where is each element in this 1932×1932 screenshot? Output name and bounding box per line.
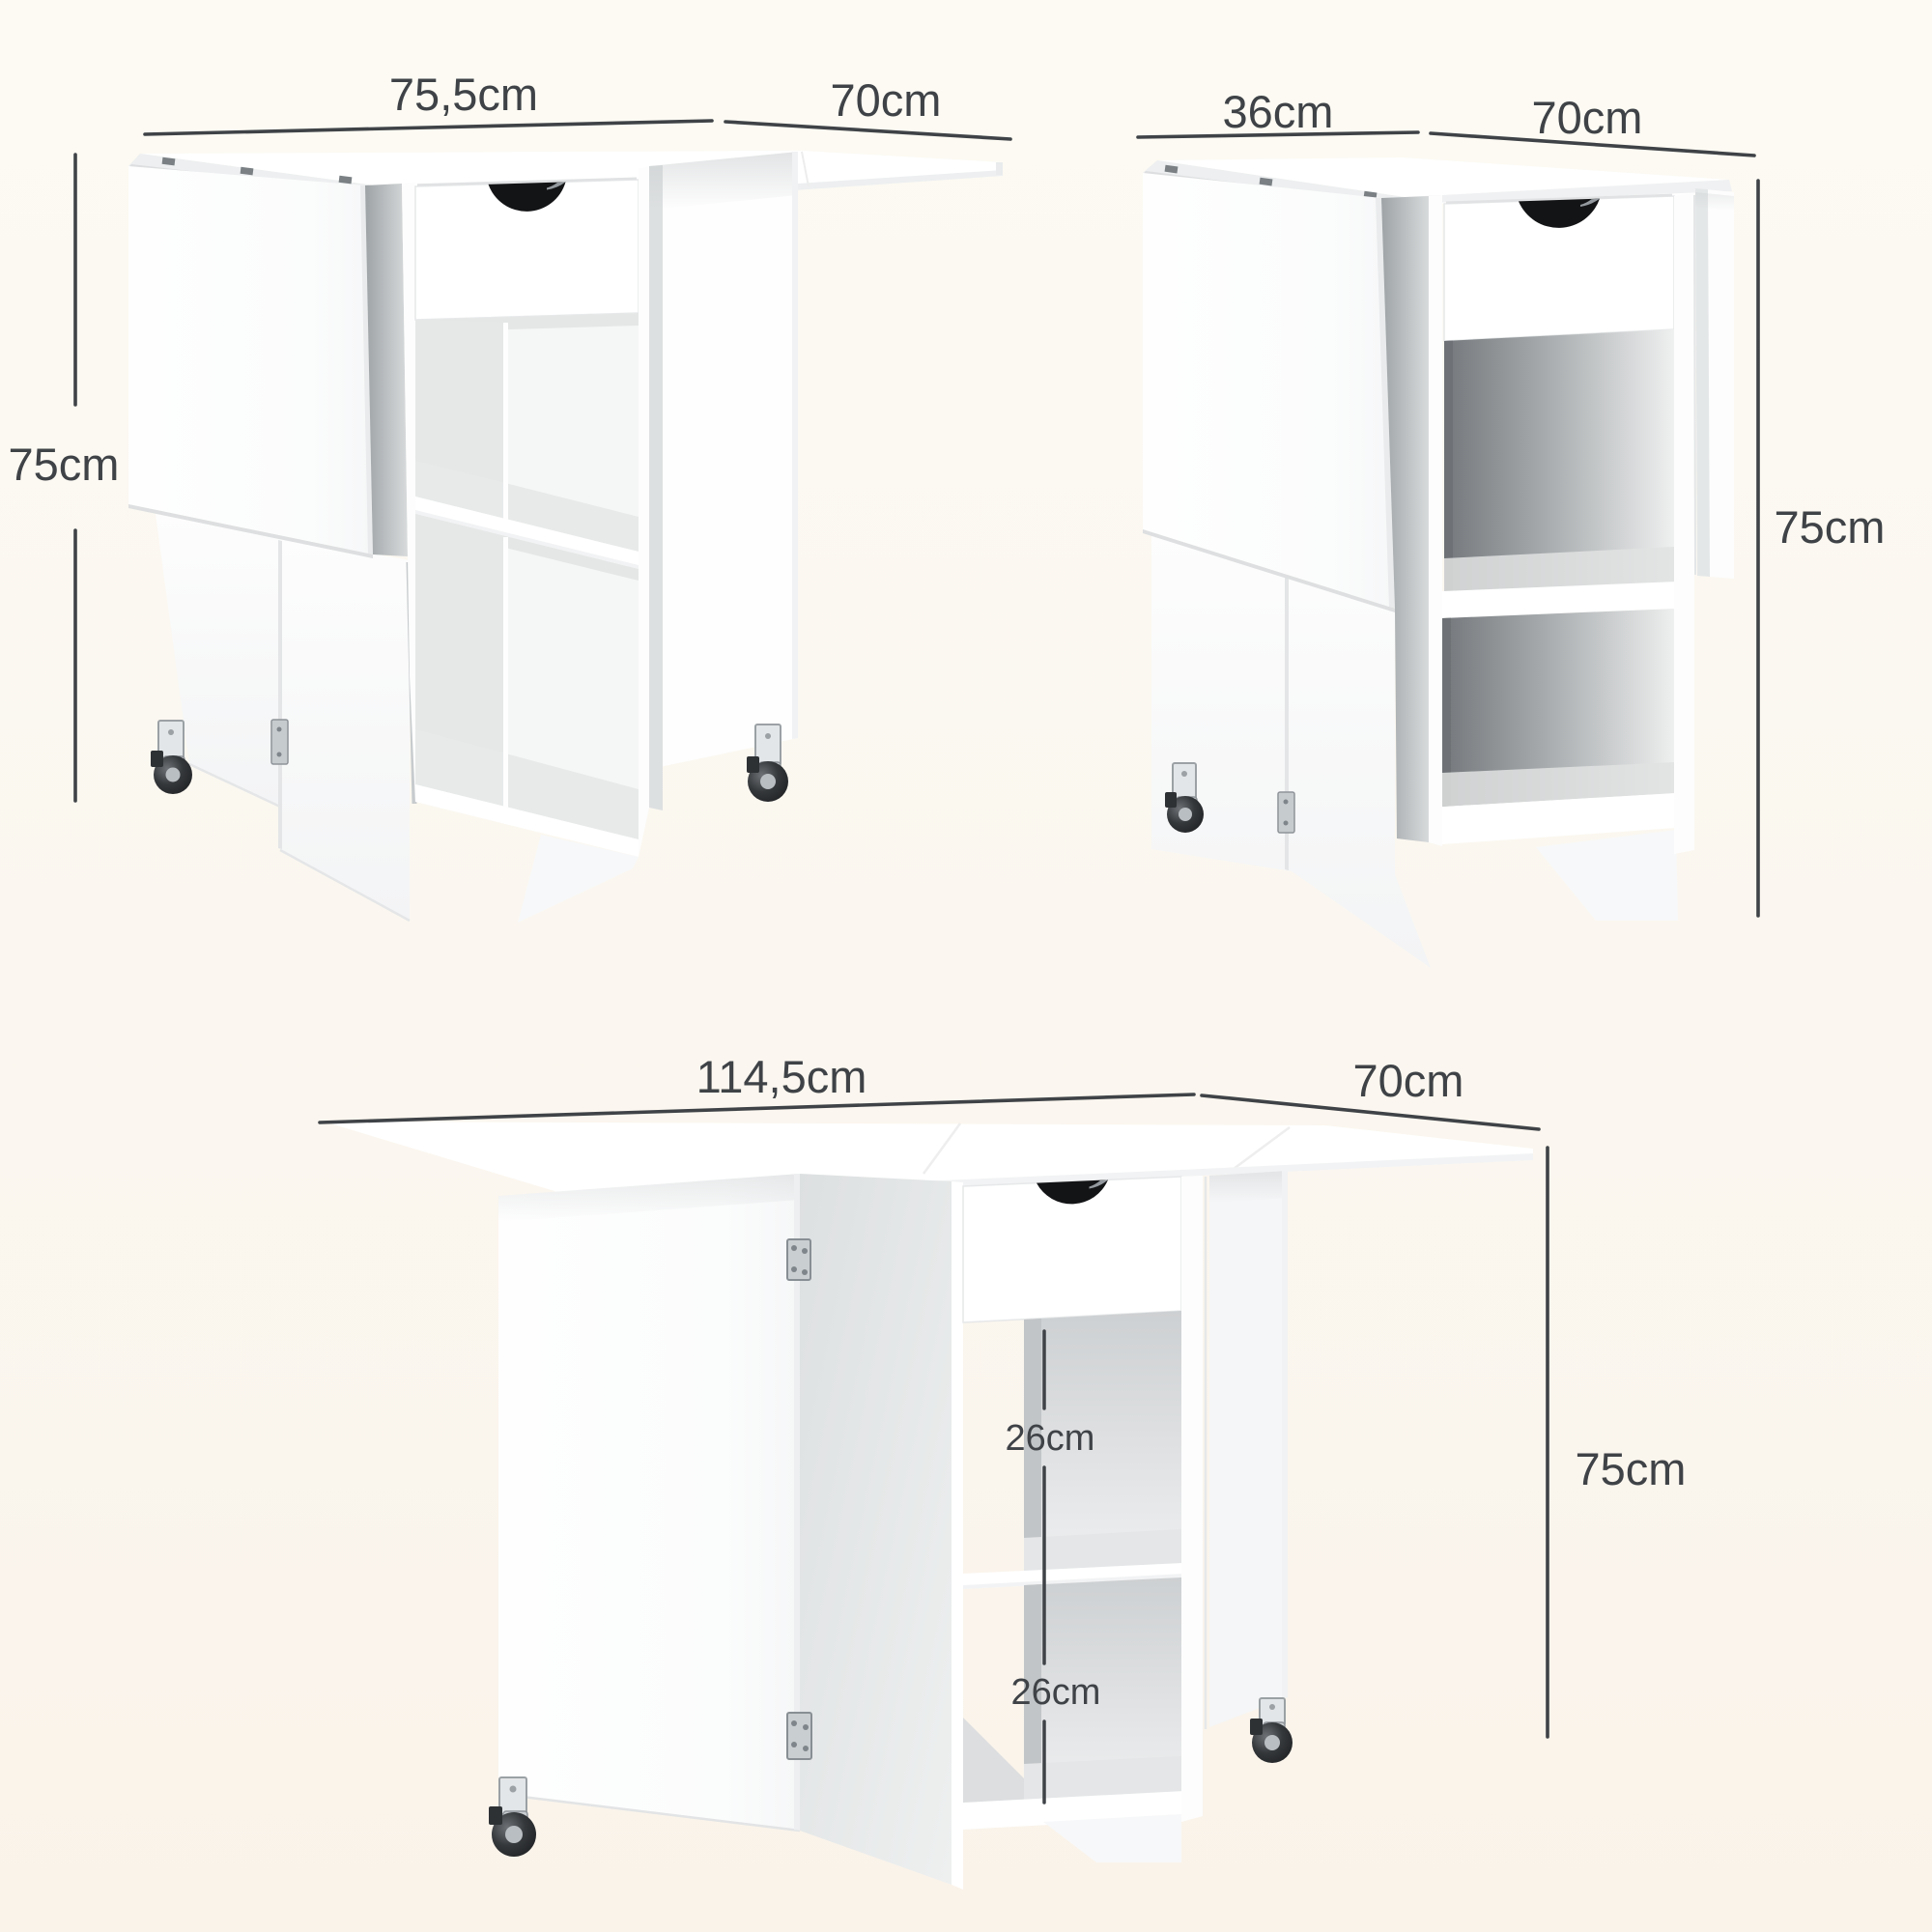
svg-text:70cm: 70cm [1532,92,1643,143]
svg-text:26cm: 26cm [1006,1418,1095,1459]
svg-text:70cm: 70cm [1353,1055,1464,1106]
svg-text:75,5cm: 75,5cm [389,69,538,120]
svg-text:75cm: 75cm [9,439,120,490]
svg-text:36cm: 36cm [1223,86,1334,137]
svg-text:75cm: 75cm [1775,501,1886,553]
svg-text:70cm: 70cm [831,74,942,126]
svg-text:114,5cm: 114,5cm [696,1051,867,1102]
svg-text:75cm: 75cm [1576,1443,1687,1494]
svg-text:26cm: 26cm [1011,1672,1101,1713]
